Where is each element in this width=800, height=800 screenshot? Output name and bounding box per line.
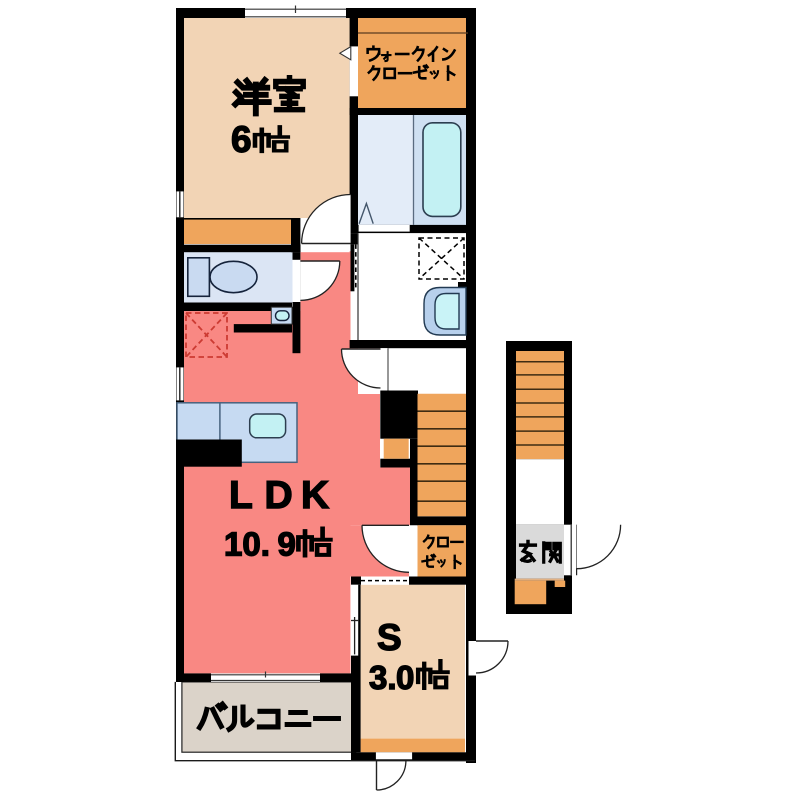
svg-text:6: 6 <box>231 119 252 160</box>
svg-text:D: D <box>265 474 293 517</box>
svg-text:K: K <box>301 474 329 517</box>
svg-text:L: L <box>229 474 253 517</box>
svg-text:S: S <box>377 617 402 658</box>
svg-text:0: 0 <box>396 659 414 696</box>
svg-text:3.: 3. <box>369 659 397 696</box>
svg-text:10.: 10. <box>224 526 270 563</box>
svg-text:9: 9 <box>278 526 296 563</box>
